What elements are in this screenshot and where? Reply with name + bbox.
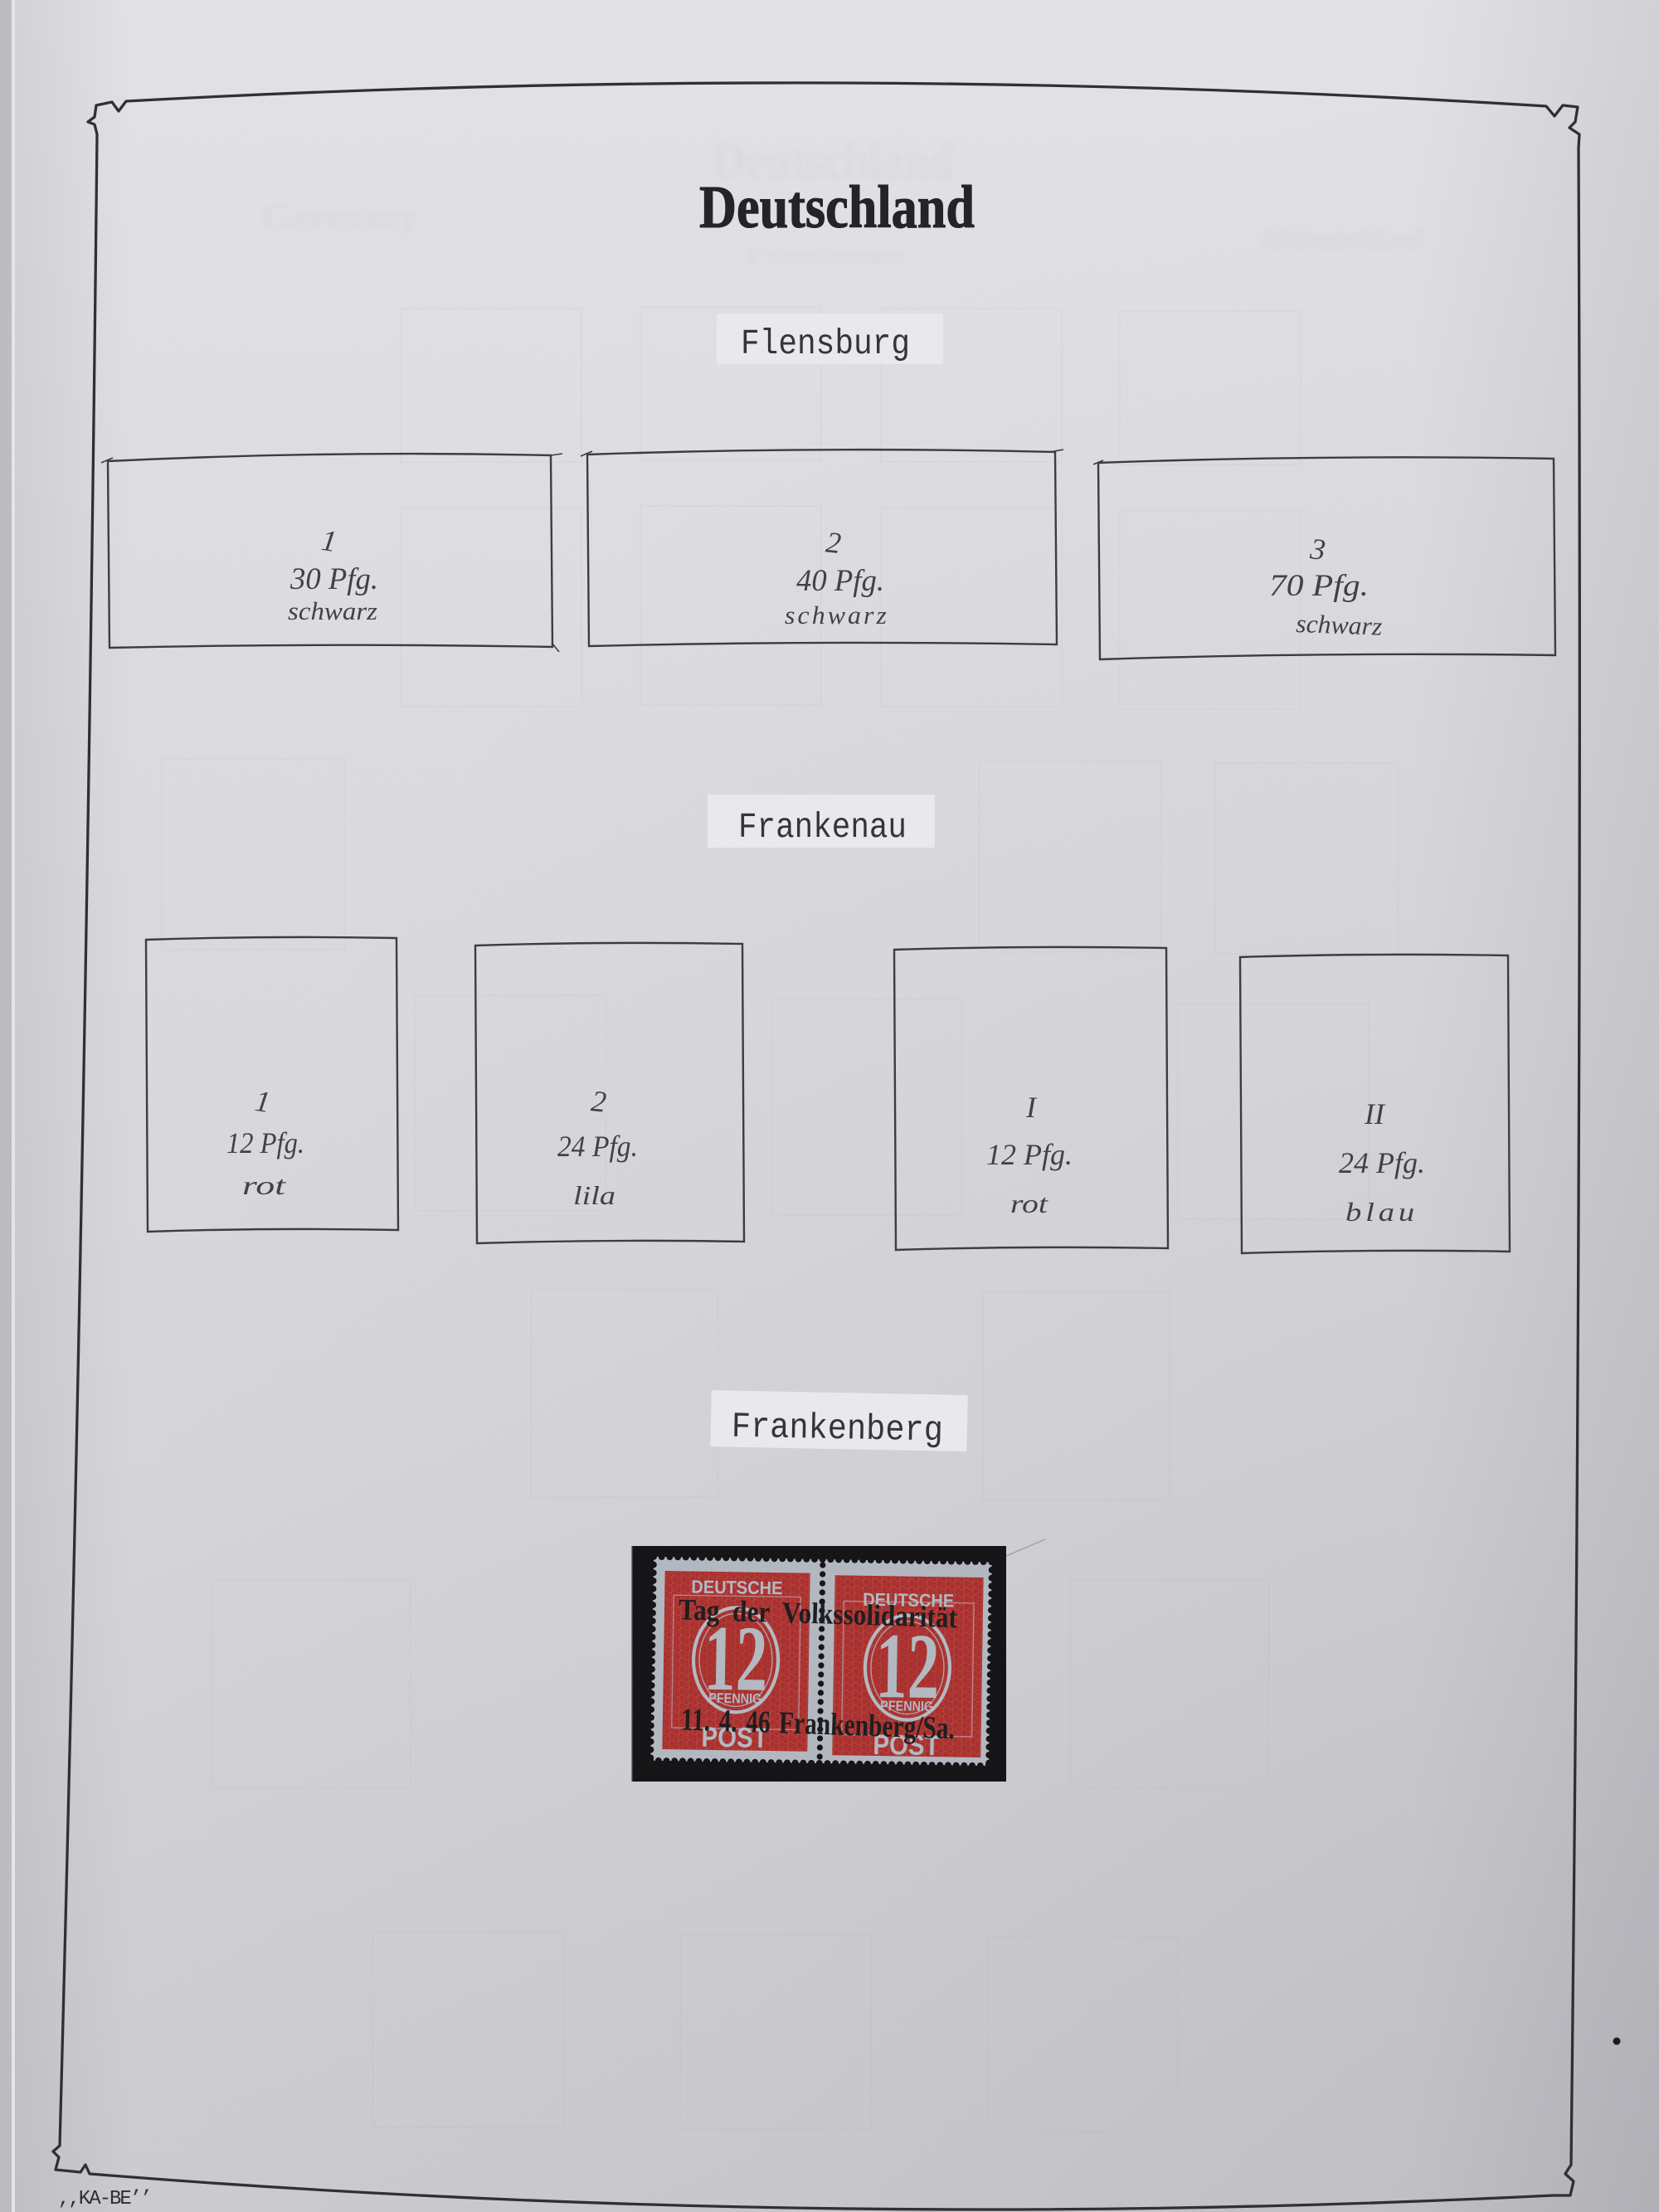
- svg-text:,,KA-BE’’: ,,KA-BE’’: [58, 2188, 151, 2210]
